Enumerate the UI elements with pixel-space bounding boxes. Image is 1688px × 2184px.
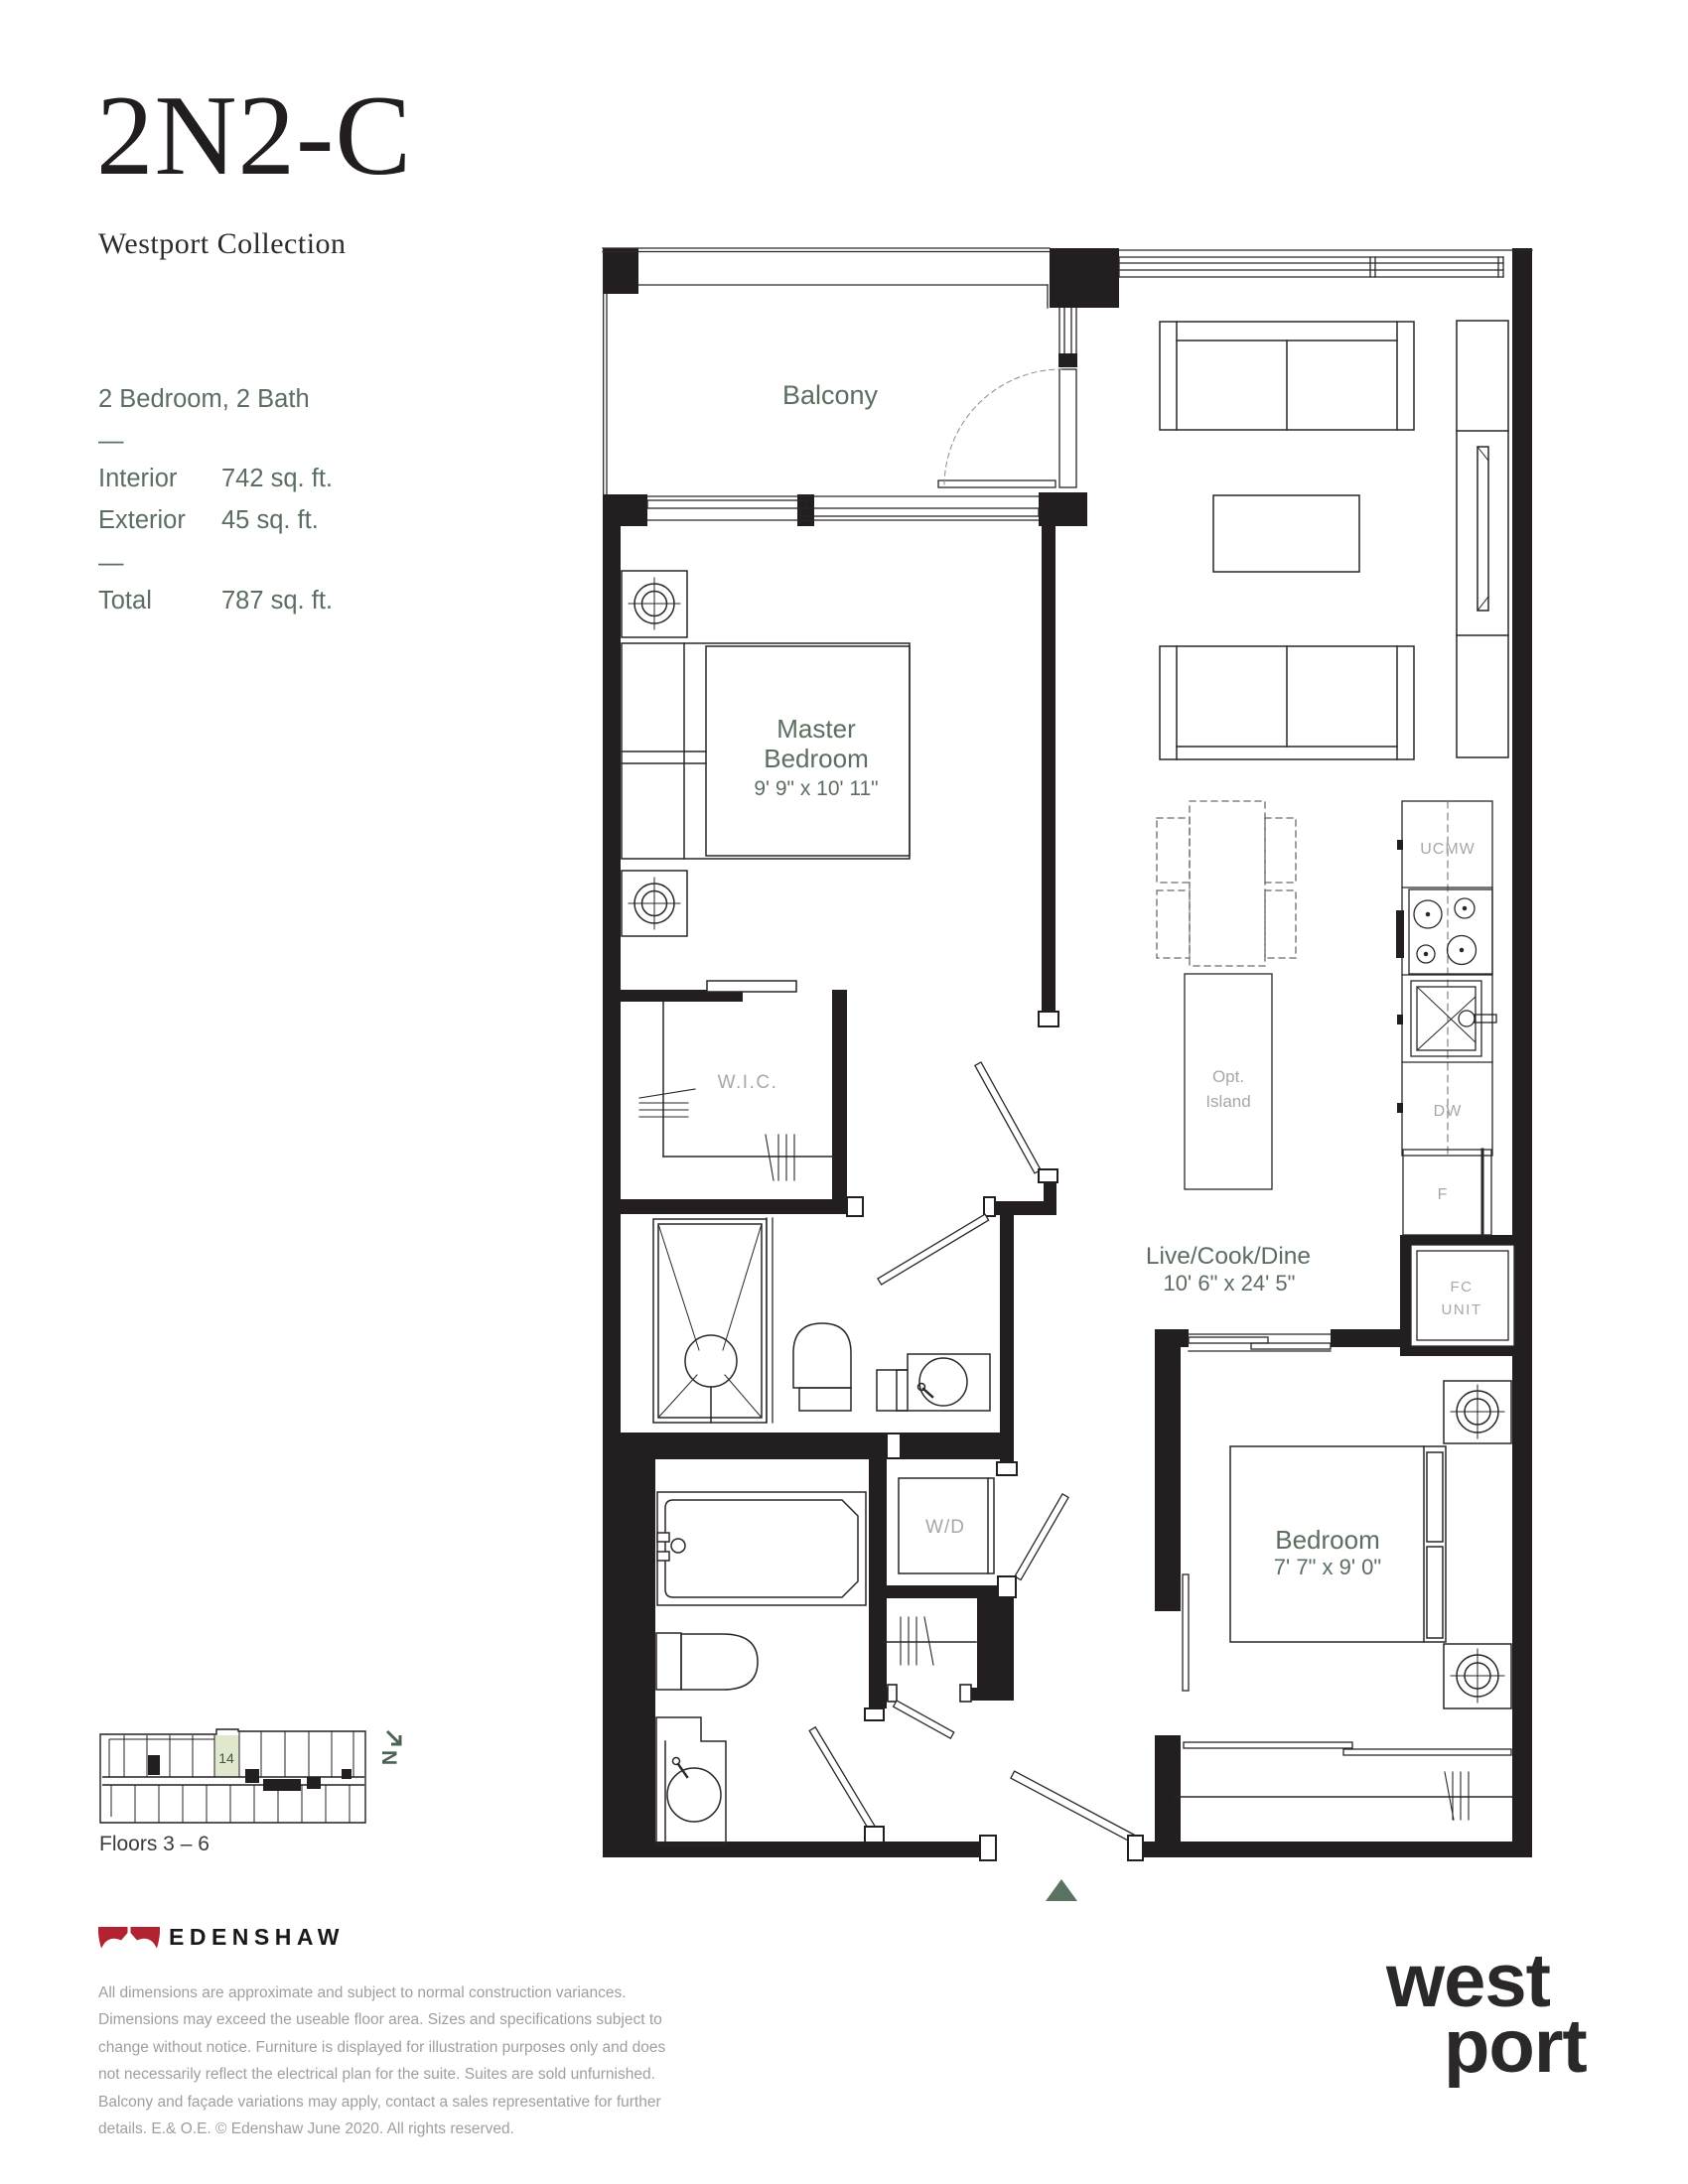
- svg-text:UNIT: UNIT: [1442, 1301, 1482, 1318]
- svg-text:W.I.C.: W.I.C.: [718, 1072, 778, 1093]
- svg-text:Opt.: Opt.: [1212, 1067, 1244, 1086]
- svg-text:change without notice. Furnitu: change without notice. Furniture is disp…: [98, 2039, 665, 2056]
- svg-text:742 sq. ft.: 742 sq. ft.: [221, 465, 333, 492]
- svg-text:details. E.& O.E. © Edenshaw J: details. E.& O.E. © Edenshaw June 2020. …: [98, 2120, 514, 2137]
- svg-text:FC: FC: [1451, 1279, 1474, 1296]
- svg-text:W/D: W/D: [925, 1517, 965, 1538]
- svg-text:N: N: [377, 1750, 400, 1765]
- svg-text:2 Bedroom, 2 Bath: 2 Bedroom, 2 Bath: [98, 385, 310, 413]
- svg-text:10' 6" x 24' 5": 10' 6" x 24' 5": [1164, 1271, 1296, 1296]
- svg-text:Island: Island: [1205, 1092, 1250, 1111]
- svg-text:Exterior: Exterior: [98, 506, 186, 534]
- svg-text:Master: Master: [776, 714, 856, 744]
- svg-text:All dimensions are approximate: All dimensions are approximate and subje…: [98, 1984, 627, 2001]
- svg-text:Dimensions may exceed the usea: Dimensions may exceed the useable floor …: [98, 2011, 662, 2028]
- svg-text:DW: DW: [1434, 1103, 1463, 1120]
- svg-text:Floors 3 – 6: Floors 3 – 6: [99, 1833, 210, 1855]
- svg-text:EDENSHAW: EDENSHAW: [169, 1924, 345, 1950]
- svg-text:Total: Total: [98, 587, 152, 614]
- svg-text:14: 14: [218, 1750, 234, 1766]
- svg-text:F: F: [1438, 1186, 1449, 1203]
- svg-text:Westport Collection: Westport Collection: [98, 227, 347, 260]
- svg-text:45 sq. ft.: 45 sq. ft.: [221, 506, 319, 534]
- svg-text:UCMW: UCMW: [1420, 841, 1476, 858]
- svg-text:7' 7" x 9' 0": 7' 7" x 9' 0": [1274, 1555, 1381, 1579]
- svg-text:Bedroom: Bedroom: [1275, 1525, 1380, 1555]
- svg-text:9' 9" x 10' 11": 9' 9" x 10' 11": [754, 777, 878, 800]
- svg-text:—: —: [98, 549, 124, 577]
- svg-text:Balcony and façade variations: Balcony and façade variations may apply,…: [98, 2094, 661, 2111]
- svg-text:Bedroom: Bedroom: [764, 744, 869, 773]
- svg-text:not necessarily reflect the el: not necessarily reflect the electrical p…: [98, 2066, 655, 2083]
- svg-text:Balcony: Balcony: [782, 380, 879, 410]
- svg-text:—: —: [98, 427, 124, 455]
- svg-text:port: port: [1444, 2004, 1587, 2089]
- svg-text:Live/Cook/Dine: Live/Cook/Dine: [1146, 1243, 1311, 1270]
- svg-text:Interior: Interior: [98, 465, 178, 492]
- svg-text:787 sq. ft.: 787 sq. ft.: [221, 587, 333, 614]
- svg-text:2N2-C: 2N2-C: [96, 72, 412, 199]
